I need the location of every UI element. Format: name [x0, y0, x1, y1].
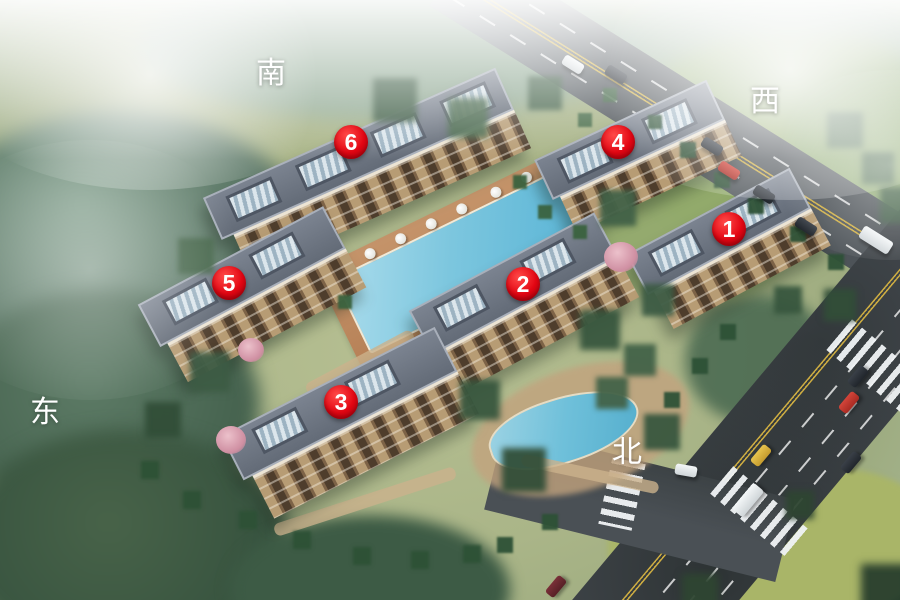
- building-marker-3: 3: [324, 385, 358, 419]
- blossom-tree: [604, 242, 638, 272]
- blossom-tree: [238, 338, 264, 362]
- blossom-tree: [216, 426, 246, 454]
- building-marker-2: 2: [506, 267, 540, 301]
- building-marker-6: 6: [334, 125, 368, 159]
- aerial-rendering: 南 西 东 北 1 2 3 4 5 6: [0, 0, 900, 600]
- building-marker-1: 1: [712, 212, 746, 246]
- direction-label-north: 北: [612, 438, 642, 468]
- building-marker-4: 4: [601, 125, 635, 159]
- car-maroon: [545, 575, 568, 599]
- roof-skylight: [251, 406, 308, 454]
- building-marker-5: 5: [212, 266, 246, 300]
- direction-label-south: 南: [256, 59, 286, 89]
- direction-label-west: 西: [750, 87, 780, 117]
- direction-label-east: 东: [30, 398, 60, 428]
